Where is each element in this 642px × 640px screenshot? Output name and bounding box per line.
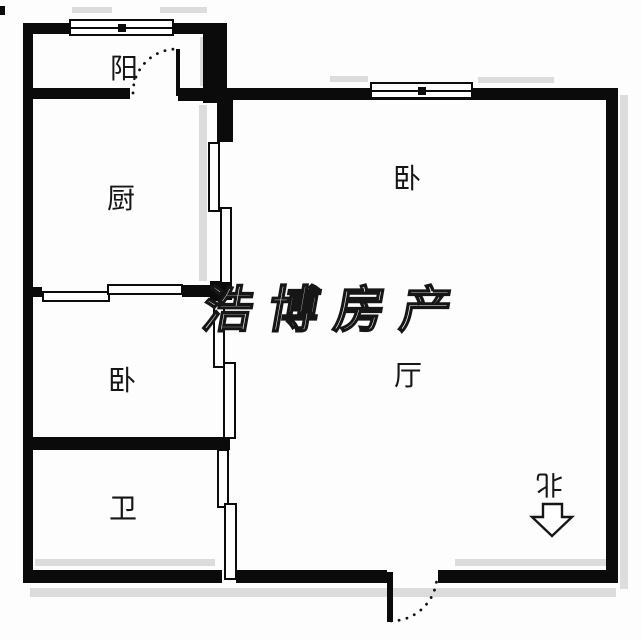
north-label: 北 — [536, 470, 563, 497]
balcony-kitchen-wall — [23, 88, 130, 99]
bedroom-north-window — [370, 82, 473, 99]
partition-pane — [224, 503, 237, 580]
shadow-bottom-east — [455, 559, 607, 566]
floor-plan: 阳 厨 卧 厅 卧 卫 北 浩博房产 — [0, 0, 642, 640]
bottom-wall-west — [23, 570, 222, 583]
partition-pane — [220, 207, 232, 284]
shadow-balcony-win-b — [160, 7, 207, 13]
shadow-top-wall-b — [478, 77, 554, 83]
room-label-kitchen: 厨 — [107, 185, 135, 213]
entry-door-leaf — [387, 572, 393, 622]
balcony-door-stub — [178, 88, 203, 101]
partition-pane — [223, 362, 236, 439]
kitchen-pass-pane — [107, 284, 183, 295]
bedroom-bathroom-wall — [23, 437, 230, 450]
window-handle — [418, 87, 426, 95]
shadow-right-wall — [620, 95, 628, 589]
balcony-door-leaf — [176, 49, 180, 96]
entry-door-swing-arc — [391, 575, 437, 621]
watermark-text: 浩博房产 — [198, 280, 473, 340]
bottom-wall-center — [236, 570, 387, 583]
shadow-kitchen-wall — [199, 105, 207, 281]
balcony-door-swing-arc — [133, 49, 177, 93]
kitchen-pass-pane — [42, 291, 110, 302]
balcony-window — [69, 19, 174, 36]
left-exterior-wall — [23, 23, 33, 583]
interior-wall-top — [217, 100, 233, 142]
room-label-balcony: 阳 — [110, 55, 138, 83]
edge-artifact — [0, 6, 5, 15]
room-label-bedroom-west: 卧 — [108, 367, 136, 395]
north-arrow-icon — [532, 504, 572, 536]
window-handle — [118, 24, 126, 32]
shadow-balcony-win-a — [72, 7, 112, 13]
right-exterior-wall — [606, 88, 618, 583]
shadow-top-wall-a — [330, 76, 368, 82]
room-label-bedroom-north: 卧 — [393, 165, 421, 193]
partition-pane — [208, 142, 220, 212]
kitchen-divider-stub — [23, 287, 42, 297]
room-label-living-room: 厅 — [394, 362, 422, 390]
room-label-bathroom: 卫 — [109, 495, 137, 523]
shadow-bottom-west — [35, 559, 215, 566]
bottom-wall-east — [438, 570, 618, 583]
partition-pane — [217, 449, 229, 508]
balcony-right-wall — [203, 23, 227, 103]
shadow-bottom-wall — [30, 588, 616, 597]
